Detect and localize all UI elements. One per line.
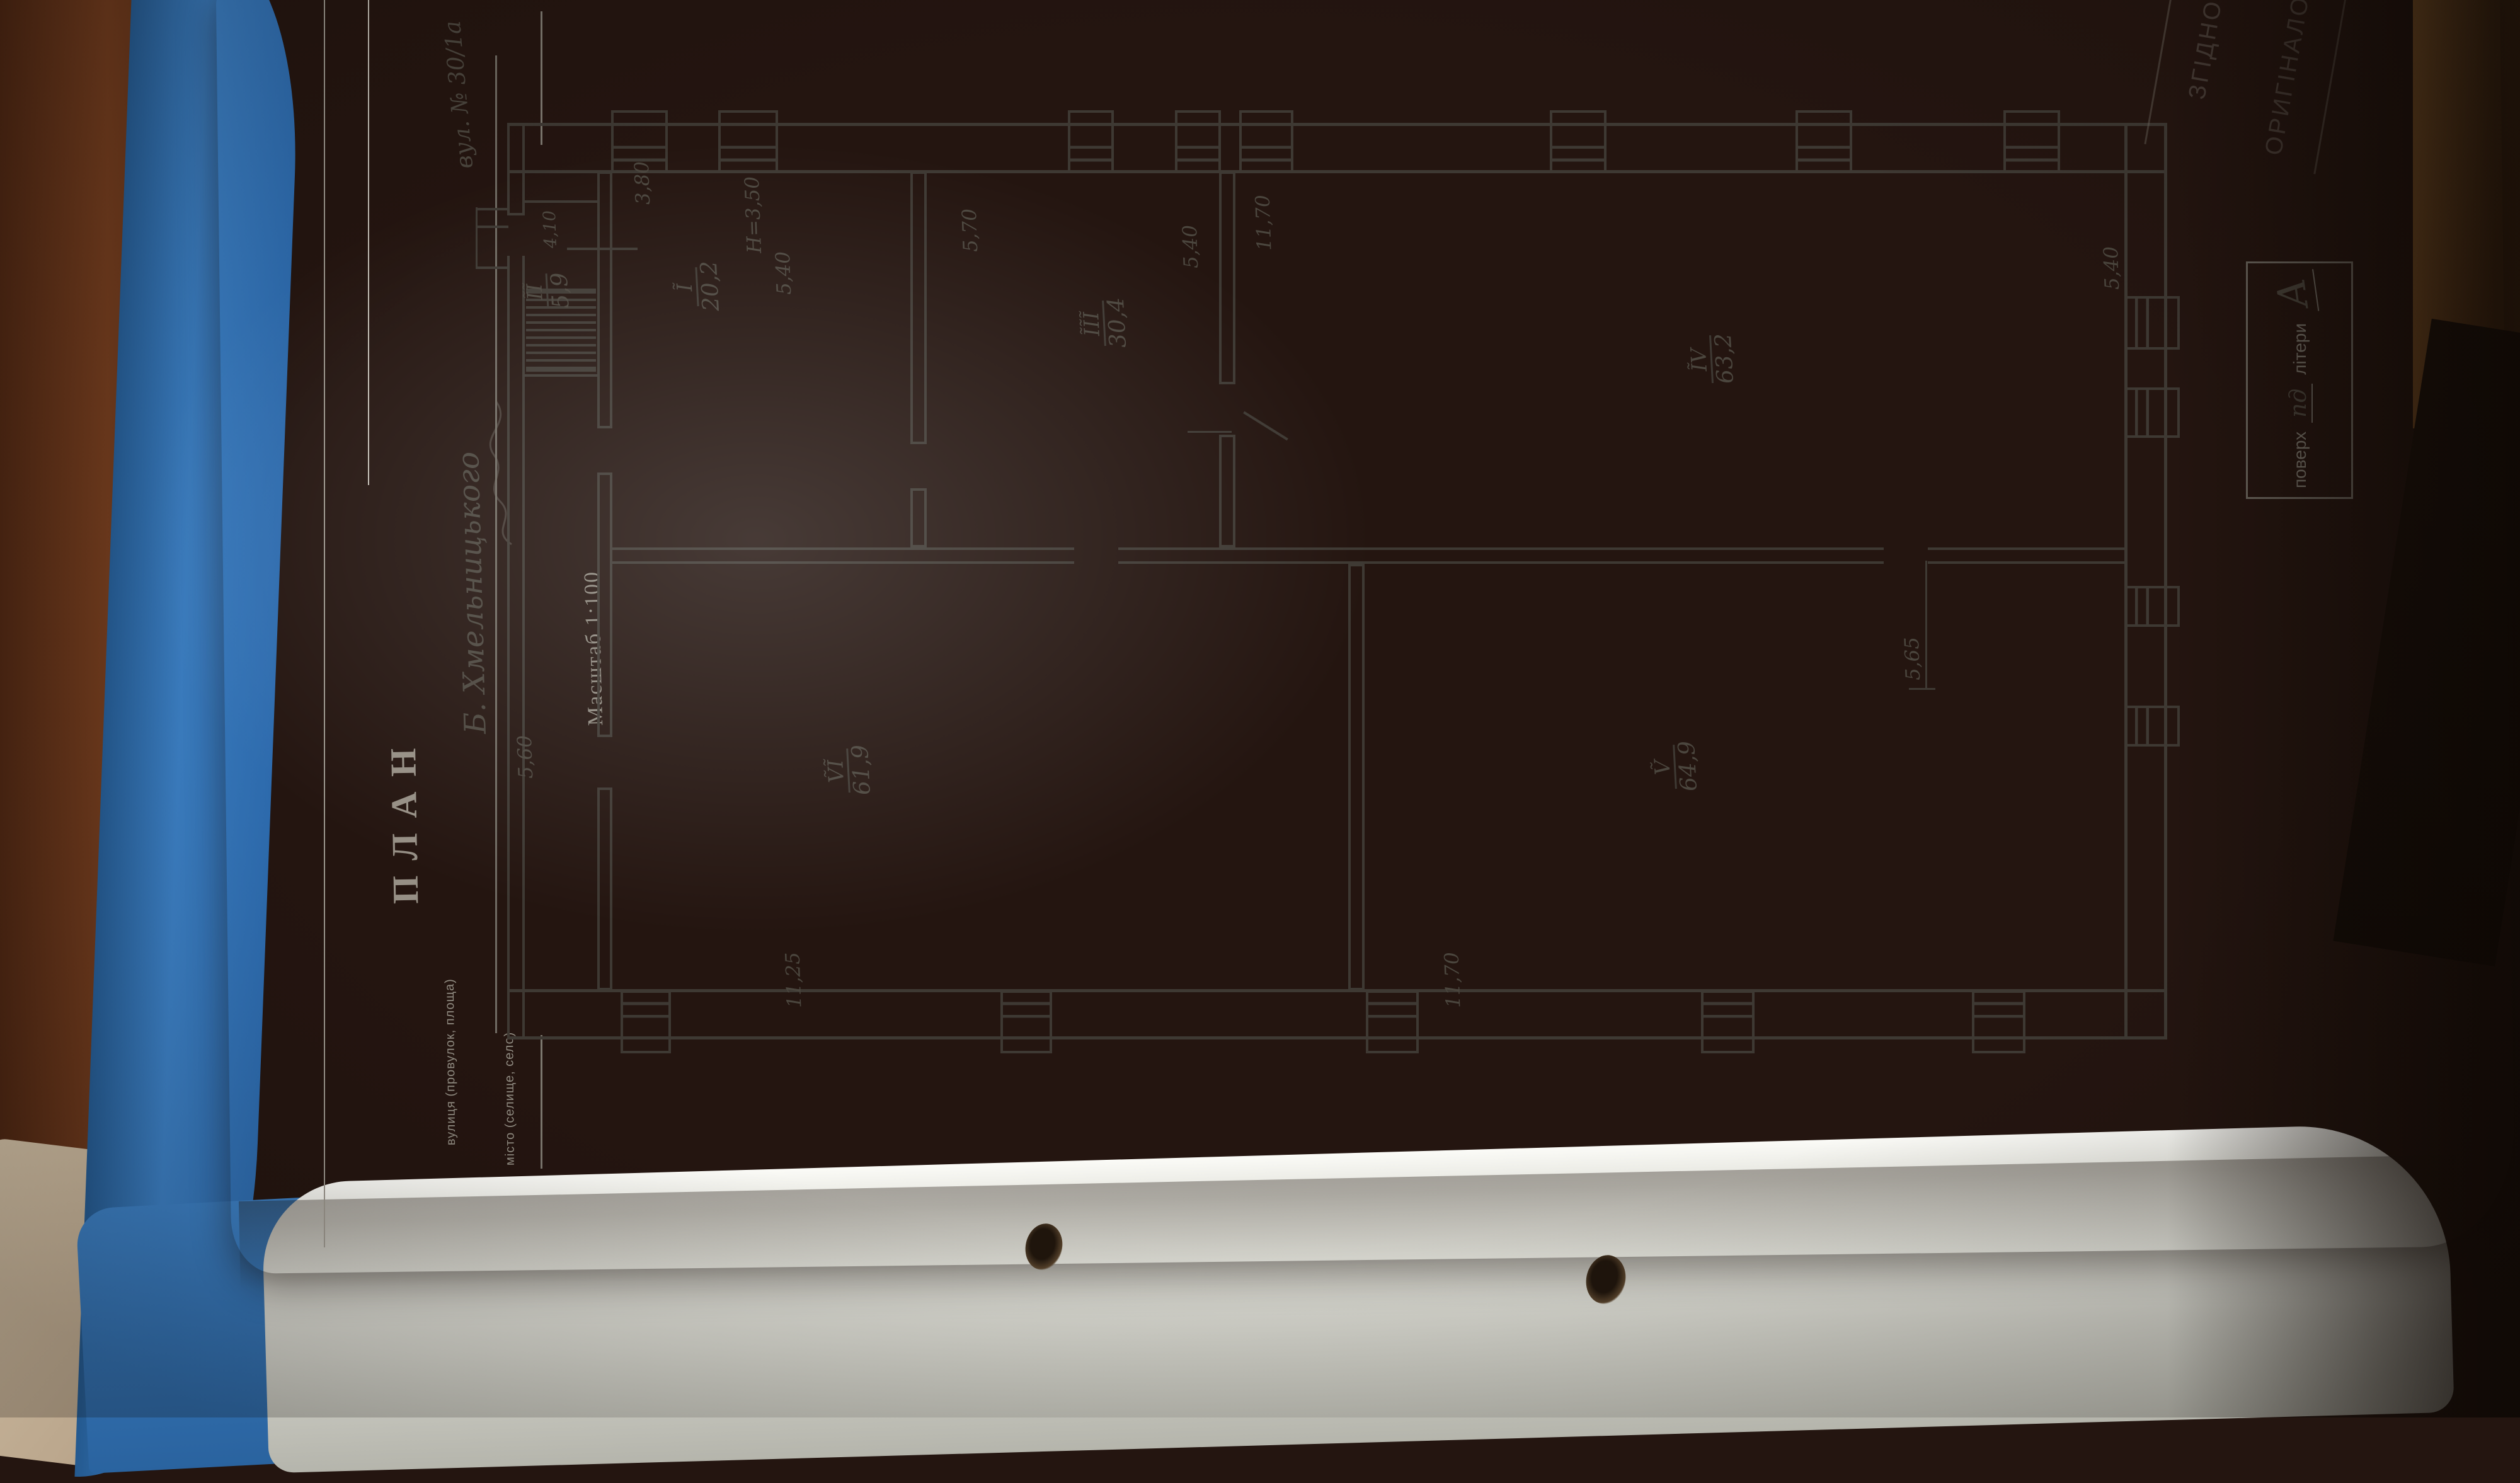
photo-vignette [0,0,2520,1417]
